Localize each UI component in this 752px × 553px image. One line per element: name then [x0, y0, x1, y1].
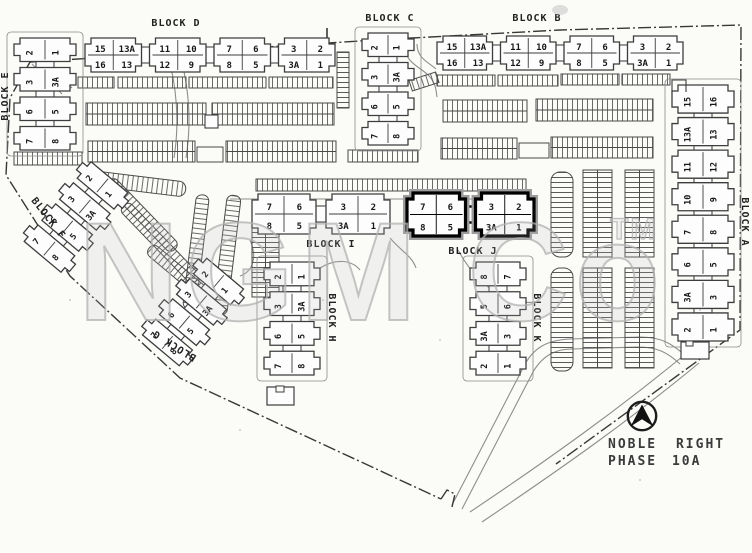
unit-number: 16 — [710, 97, 720, 107]
unit-number: 11 — [159, 45, 170, 55]
unit-number: 13 — [473, 59, 484, 69]
unit-number: 15 — [684, 97, 694, 107]
block-connector — [694, 146, 712, 151]
unit-number: 11 — [684, 162, 694, 172]
parking-area — [197, 147, 223, 162]
unit-number: 3 — [371, 75, 381, 80]
unit-number: 13 — [710, 129, 720, 139]
unit-number: 7 — [420, 203, 425, 213]
unit-number: 7 — [503, 274, 513, 279]
unit-number: 3 — [710, 295, 720, 300]
unit-number: 2 — [274, 274, 284, 279]
unit-number: 8 — [710, 230, 720, 235]
unit-number: 7 — [227, 45, 232, 55]
parking-strip — [337, 52, 349, 108]
unit-number: 3 — [274, 304, 284, 309]
small-building — [681, 342, 709, 359]
block-connector — [493, 45, 501, 61]
unit-number: 2 — [26, 50, 36, 55]
scan-smudge — [552, 5, 568, 15]
unit-number: 16 — [447, 59, 458, 69]
block-connector — [694, 308, 712, 313]
block-H: 2133A6578BLOCK H — [257, 256, 337, 381]
unit-number: 8 — [420, 223, 425, 233]
unit-number: 5 — [52, 109, 62, 114]
unit-number: 7 — [371, 134, 381, 139]
parking-strip — [498, 75, 558, 86]
scan-speckle — [439, 339, 441, 341]
site-boundary — [441, 490, 455, 507]
unit-number: 7 — [26, 139, 36, 144]
block-label: BLOCK J — [448, 246, 497, 257]
road-line — [390, 238, 416, 268]
block-connector — [379, 57, 397, 63]
site-plan-page: 151613A131112109786533A21BLOCK D151613A1… — [0, 0, 752, 553]
road-line — [462, 372, 533, 509]
unit-number: 15 — [447, 43, 458, 53]
unit-number: 13A — [119, 45, 136, 55]
unit-number: 3A — [480, 331, 490, 341]
block-label: BLOCK H — [326, 293, 337, 342]
scan-speckle — [639, 479, 641, 481]
project-name: NOBLE RIGHT — [608, 437, 748, 452]
block-connector — [36, 121, 54, 127]
unit-number: 1 — [503, 364, 513, 369]
parking-strip — [551, 172, 573, 257]
unit-number: 6 — [274, 334, 284, 339]
unit-number: 13A — [470, 43, 487, 53]
parking-strip — [437, 75, 495, 86]
unit-number: 8 — [267, 222, 272, 232]
unit-number: 3A — [392, 72, 402, 82]
unit-number: 11 — [510, 43, 521, 53]
unit-number: 13A — [684, 127, 694, 142]
block-connector — [271, 47, 279, 63]
block-connector — [489, 286, 507, 292]
site-plan-drawing: 151613A131112109786533A21BLOCK D151613A1… — [0, 0, 752, 553]
block-J: 786533A21BLOCK J — [407, 193, 534, 257]
small-structure — [205, 115, 218, 128]
unit-number: 3A — [338, 222, 349, 232]
unit-number: 8 — [52, 139, 62, 144]
unit-number: 1 — [516, 223, 521, 233]
block-B: 151613A131112109786533A21BLOCK B — [437, 13, 683, 70]
unit-number: 8 — [227, 61, 232, 71]
unit-number: 16 — [95, 61, 106, 71]
unit-number: 2 — [684, 327, 694, 332]
parking-strip — [269, 77, 333, 88]
unit-number: 6 — [371, 104, 381, 109]
block-connector — [694, 276, 712, 281]
north-arrow-icon — [625, 399, 659, 433]
unit-number: 2 — [371, 45, 381, 50]
block-label: BLOCK B — [512, 13, 561, 24]
block-label: BLOCK A — [739, 197, 750, 246]
block-connector — [283, 345, 301, 351]
block-connector — [379, 116, 397, 122]
block-connector — [316, 206, 326, 222]
unit-number: 9 — [539, 59, 544, 69]
unit-number: 3A — [288, 61, 299, 71]
block-A: 151613A13111210978653A321BLOCK A — [665, 79, 750, 347]
unit-number: 6 — [448, 203, 453, 213]
unit-number: 5 — [448, 223, 453, 233]
unit-number: 1 — [52, 50, 62, 55]
block-connector — [556, 45, 564, 61]
block-label: BLOCK D — [151, 18, 200, 29]
block-connector — [694, 243, 712, 248]
unit-number: 2 — [371, 203, 376, 213]
block-connector — [36, 62, 54, 68]
unit-number: 3A — [684, 292, 694, 302]
unit-number: 3A — [486, 223, 497, 233]
block-connector — [489, 316, 507, 322]
block-label: BLOCK E — [0, 71, 11, 120]
unit-number: 3 — [341, 203, 346, 213]
unit-number: 5 — [480, 304, 490, 309]
block-connector — [694, 178, 712, 183]
unit-number: 3A — [637, 59, 648, 69]
unit-number: 1 — [710, 327, 720, 332]
parking-strip — [561, 74, 619, 85]
parking-strip — [551, 268, 573, 371]
unit-number: 15 — [95, 45, 106, 55]
unit-number: 5 — [602, 59, 607, 69]
unit-number: 8 — [297, 364, 307, 369]
scan-speckle — [322, 299, 324, 301]
unit-number: 2 — [318, 45, 323, 55]
parking-area — [519, 143, 549, 158]
block-label: BLOCK K — [531, 293, 542, 342]
block-D: 151613A131112109786533A21BLOCK D — [85, 18, 335, 72]
unit-number: 10 — [186, 45, 197, 55]
unit-number: 5 — [392, 104, 402, 109]
unit-number: 6 — [602, 43, 607, 53]
block-connector — [283, 286, 301, 292]
unit-number: 2 — [480, 364, 490, 369]
unit-number: 3 — [489, 203, 494, 213]
unit-number: 1 — [318, 61, 323, 71]
unit-number: 7 — [274, 364, 284, 369]
block-K: 87563A321BLOCK K — [463, 256, 542, 381]
scan-speckle — [699, 309, 701, 311]
parking-strip — [189, 77, 266, 88]
unit-number: 3 — [26, 80, 36, 85]
unit-number: 6 — [297, 203, 302, 213]
road-line — [452, 368, 523, 505]
parking-strip — [622, 74, 670, 85]
block-label: BLOCK I — [306, 239, 355, 250]
unit-number: 12 — [510, 59, 521, 69]
block-connector — [36, 91, 54, 97]
parking-strip — [14, 152, 82, 165]
unit-number: 1 — [371, 222, 376, 232]
block-connector — [489, 345, 507, 351]
unit-number: 6 — [253, 45, 258, 55]
unit-number: 3 — [640, 43, 645, 53]
unit-number: 5 — [253, 61, 258, 71]
block-connector — [694, 211, 712, 216]
unit-number: 12 — [159, 61, 170, 71]
unit-number: 10 — [536, 43, 547, 53]
unit-number: 6 — [684, 262, 694, 267]
unit-number: 2 — [516, 203, 521, 213]
block-connector — [620, 45, 628, 61]
small-building-notch — [276, 386, 284, 392]
unit-number: 7 — [576, 43, 581, 53]
block-connector — [283, 316, 301, 322]
unit-number: 1 — [666, 59, 671, 69]
unit-number: 7 — [684, 230, 694, 235]
unit-number: 12 — [710, 162, 720, 172]
unit-number: 8 — [392, 134, 402, 139]
project-phase: PHASE 10A — [608, 454, 748, 469]
unit-number: 1 — [392, 45, 402, 50]
unit-number: 5 — [710, 262, 720, 267]
unit-number: 10 — [684, 195, 694, 205]
unit-number: 5 — [297, 334, 307, 339]
block-E: 2133A6578BLOCK E — [0, 32, 83, 156]
unit-number: 13 — [121, 61, 132, 71]
unit-number: 9 — [710, 197, 720, 202]
scan-speckle — [239, 429, 241, 431]
road-line — [417, 44, 436, 69]
unit-number: 3A — [297, 302, 307, 312]
unit-number: 8 — [480, 274, 490, 279]
block-connector — [142, 47, 150, 63]
unit-number: 6 — [503, 304, 513, 309]
title-legend: NOBLE RIGHT PHASE 10A — [608, 399, 748, 469]
unit-number: 5 — [297, 222, 302, 232]
parking-strip — [118, 77, 186, 88]
block-connector — [694, 113, 712, 118]
scan-speckle — [69, 299, 71, 301]
block-label: BLOCK C — [365, 13, 414, 24]
unit-number: 1 — [297, 274, 307, 279]
road-line — [320, 261, 360, 270]
block-connector — [206, 47, 214, 63]
small-building-notch — [686, 341, 693, 346]
block-connector — [379, 86, 397, 92]
unit-number: 3A — [52, 77, 62, 87]
unit-number: 3 — [291, 45, 296, 55]
unit-number: 9 — [189, 61, 194, 71]
unit-number: 2 — [666, 43, 671, 53]
unit-number: 7 — [267, 203, 272, 213]
unit-number: 6 — [26, 109, 36, 114]
unit-number: 3 — [503, 334, 513, 339]
unit-number: 8 — [576, 59, 581, 69]
parking-strip — [348, 150, 418, 162]
